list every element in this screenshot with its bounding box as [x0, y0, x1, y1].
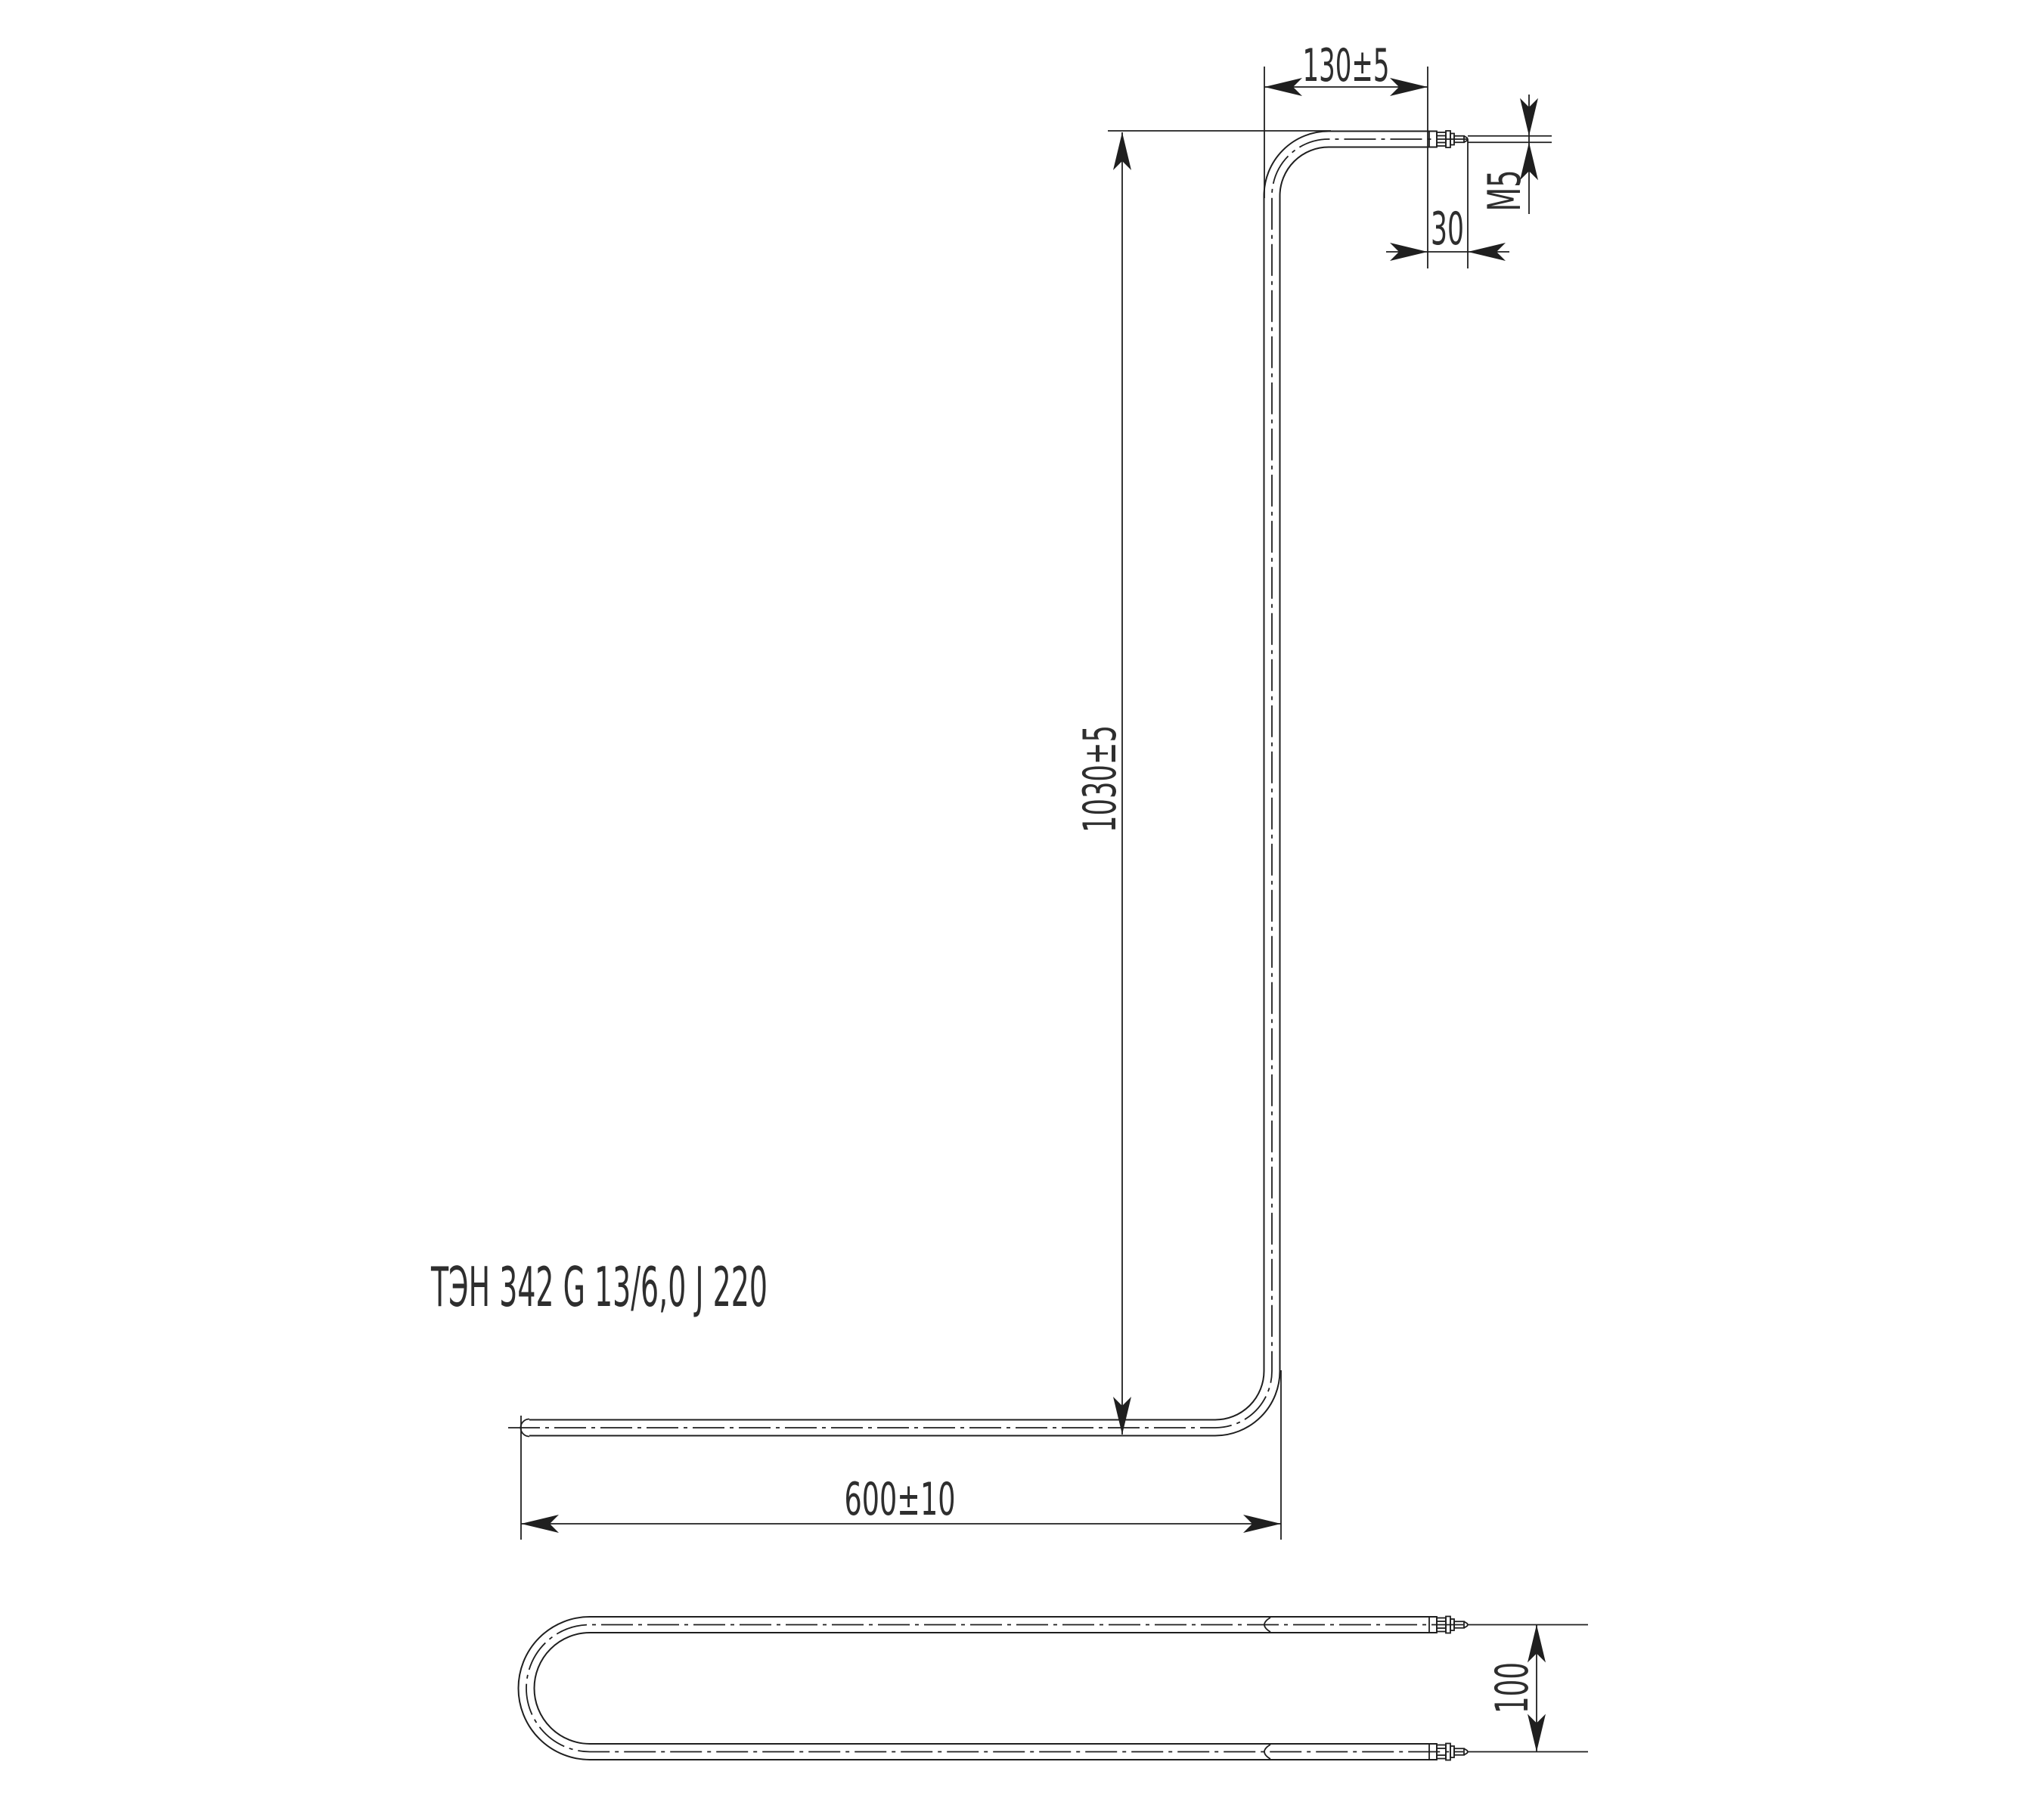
tube-outline-outer	[529, 139, 1437, 1428]
hairpin-centerline	[526, 1625, 1463, 1752]
dim-600-label: 600±10	[845, 1473, 956, 1526]
hairpin-outline-outer	[526, 1625, 1437, 1752]
dim-1030	[1108, 131, 1331, 1435]
tube-bore-mask	[529, 139, 1437, 1428]
dim-130-label: 130±5	[1303, 39, 1390, 92]
part-designation-label: ТЭН 342 G 13/6,0 J 220	[430, 1255, 768, 1319]
heating-element-technical-drawing: 130±5 30 M5 1030±5 600±10 100 ТЭН 342 G …	[0, 0, 2044, 1796]
dim-1030-label: 1030±5	[1074, 725, 1127, 833]
dim-m5-label: M5	[1478, 170, 1531, 212]
dim-100-label: 100	[1486, 1662, 1539, 1714]
hairpin-bore-mask	[526, 1625, 1437, 1752]
dim-30-label: 30	[1431, 203, 1464, 256]
drawing-linework	[508, 67, 1588, 1760]
tube-centerline	[508, 139, 1472, 1428]
drawing-labels: 130±5 30 M5 1030±5 600±10 100 ТЭН 342 G …	[430, 39, 1539, 1714]
drawing-page: 130±5 30 M5 1030±5 600±10 100 ТЭН 342 G …	[0, 0, 2044, 1796]
dimension-arrowheads	[521, 78, 1546, 1752]
bottom-view	[526, 1616, 1588, 1760]
main-view	[508, 131, 1472, 1437]
